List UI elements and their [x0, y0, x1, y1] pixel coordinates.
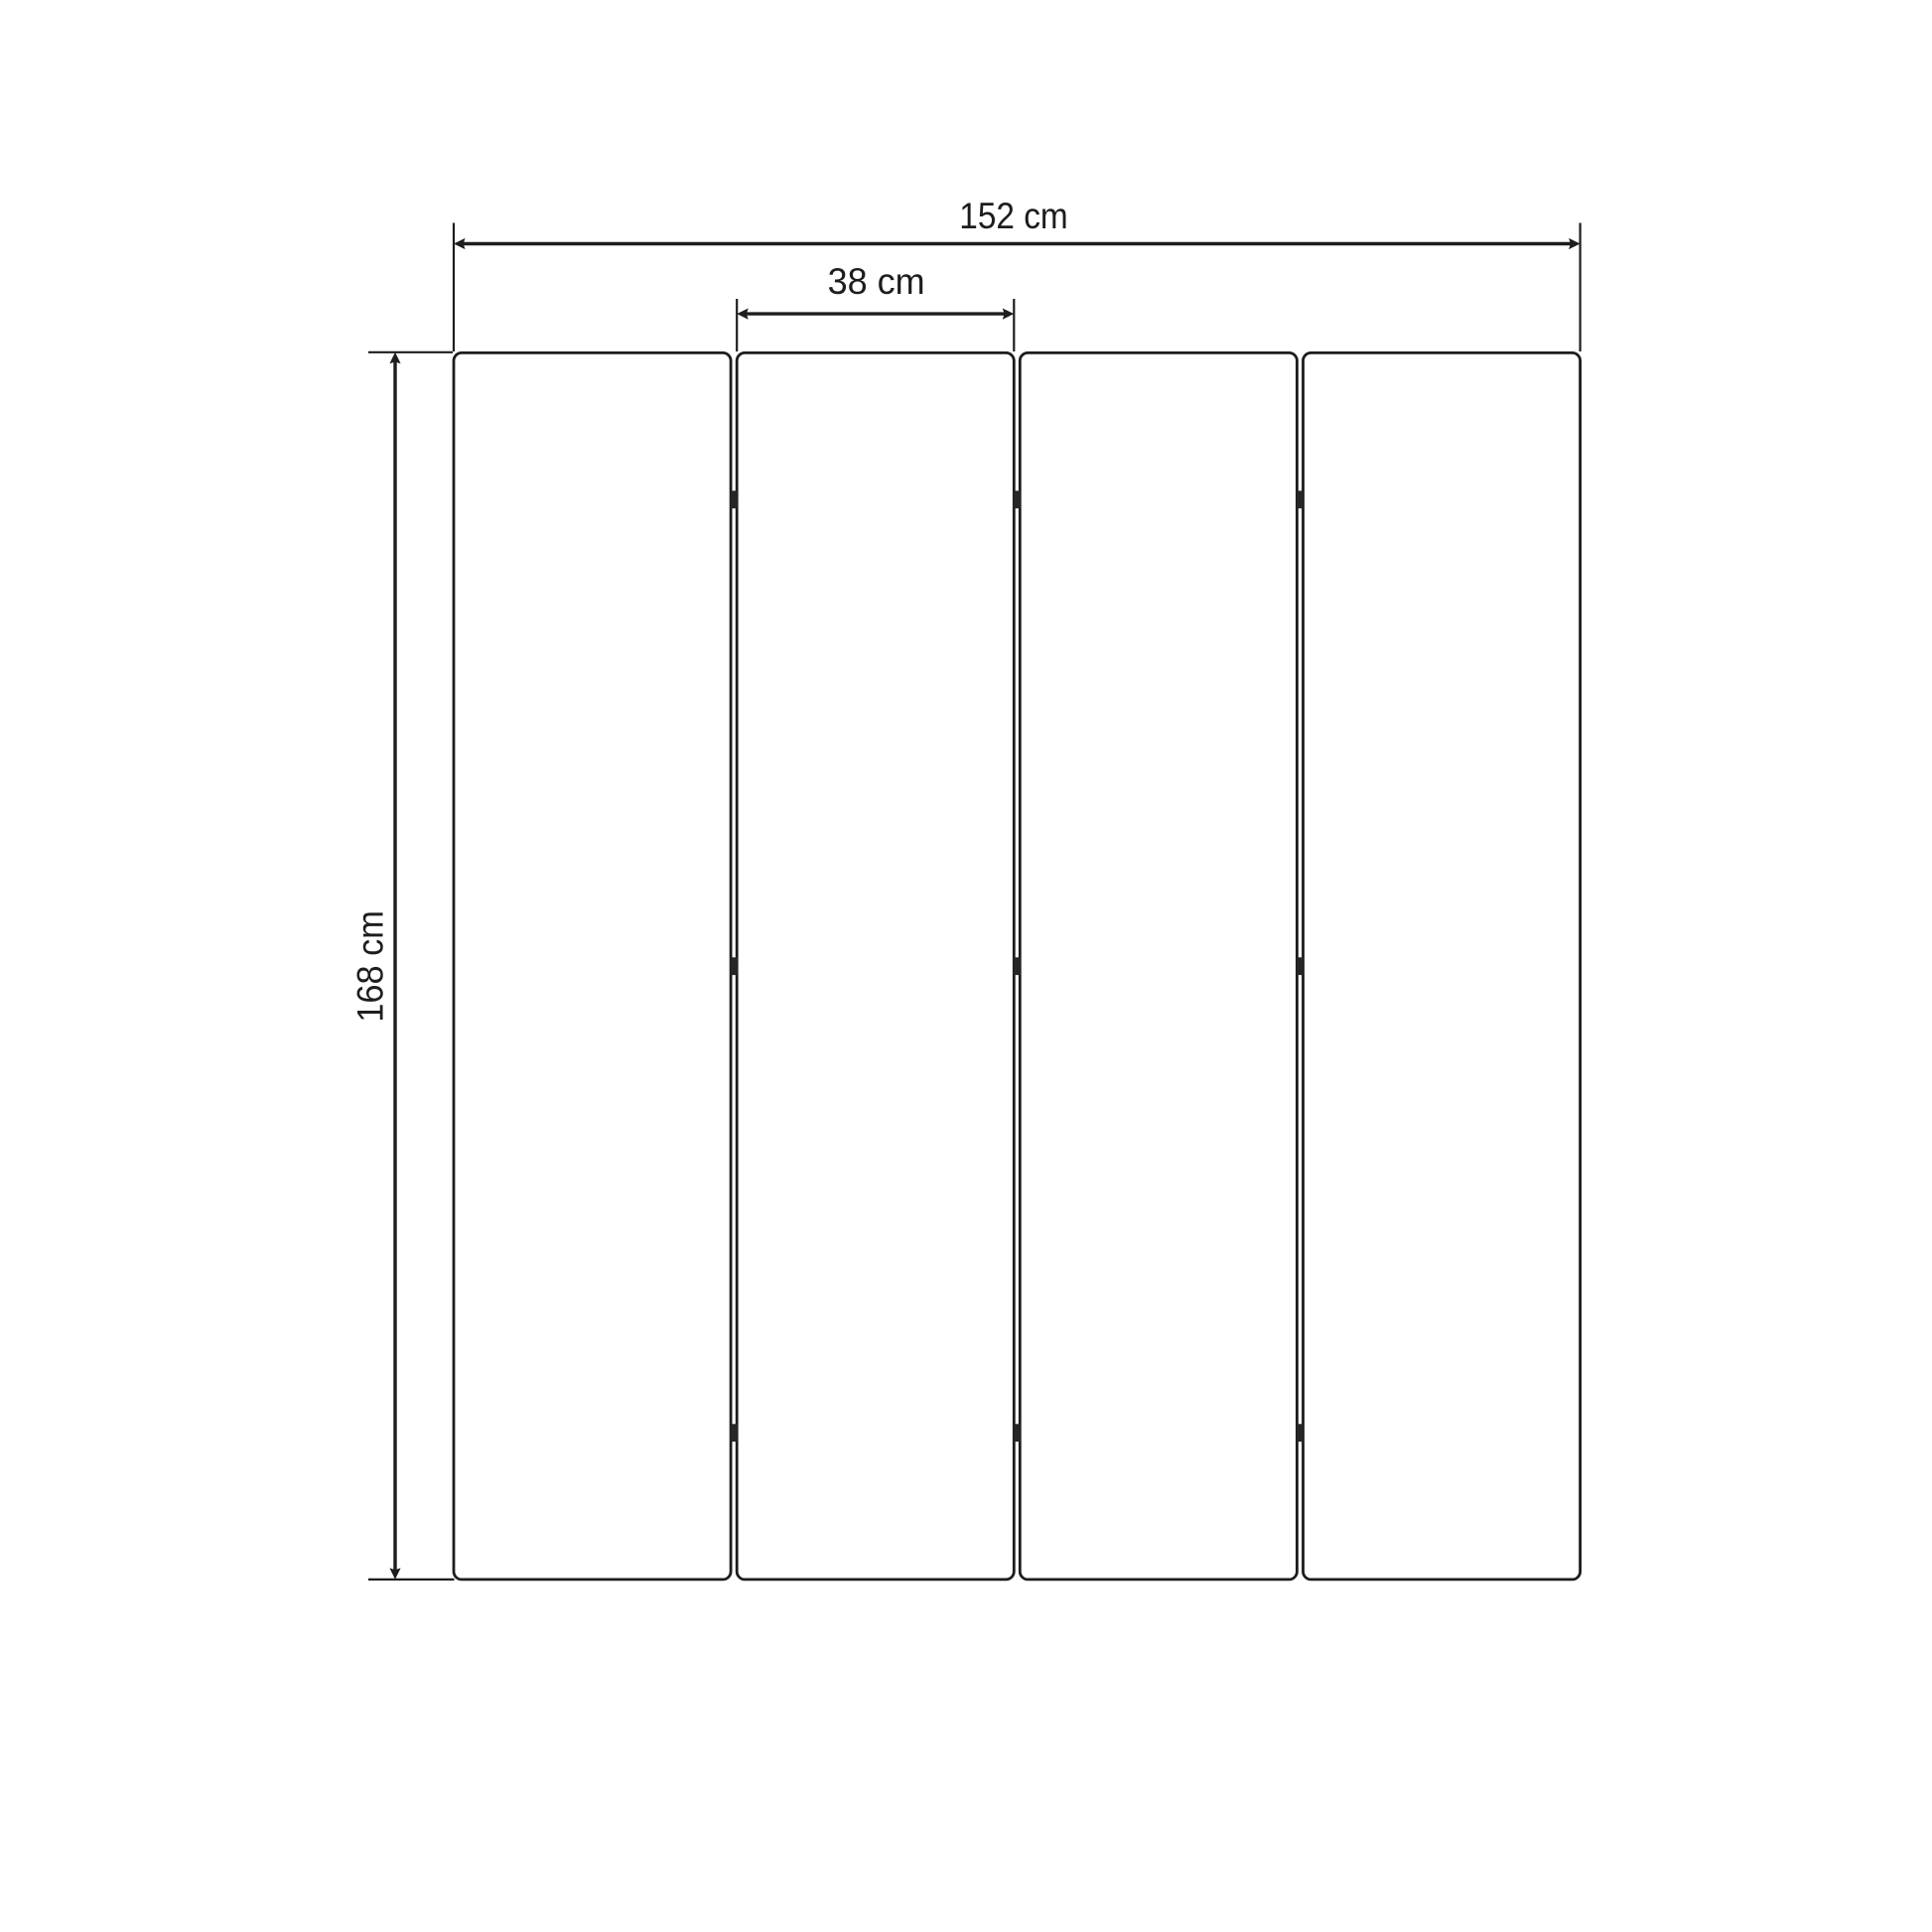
svg-text:38 cm: 38 cm	[828, 261, 925, 302]
svg-text:152 cm: 152 cm	[959, 196, 1068, 236]
svg-text:168 cm: 168 cm	[349, 910, 390, 1023]
